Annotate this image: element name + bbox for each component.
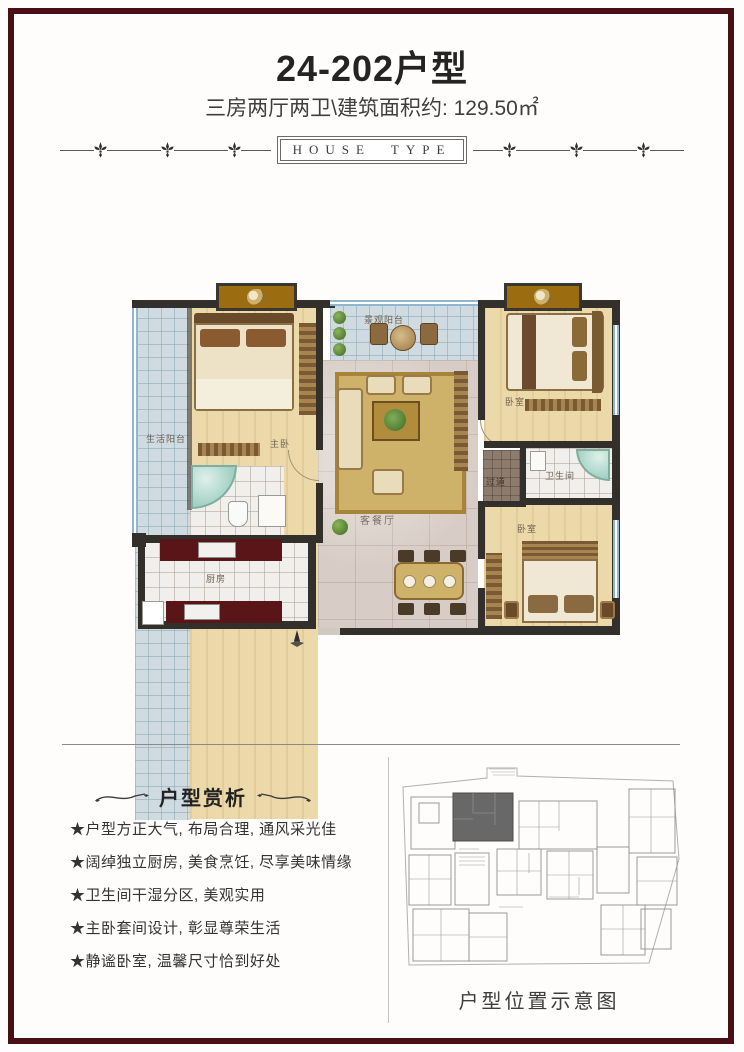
wall [524,498,614,505]
fleur-de-lis-icon [570,142,583,158]
fleur-de-lis-icon [503,142,516,158]
page-title: 24-202户型 [0,40,744,92]
table-plant-icon [384,409,406,431]
wardrobe [486,553,502,619]
wall [484,441,614,448]
wall [340,628,480,635]
north-arrow-icon [288,630,306,657]
plate [443,575,456,588]
dining-chair [450,550,466,562]
wardrobe [299,323,316,415]
bed-headboard [522,541,598,559]
highlighted-unit [453,793,513,841]
kitchen-door [142,601,164,625]
nightstand [600,601,615,619]
tv-cabinet [454,371,468,471]
dining-chair [424,550,440,562]
divider-line [60,150,94,151]
bedroom-bottom-bed [522,559,598,623]
pillow [572,351,587,381]
wall [478,300,485,420]
analysis-point: ★静谧卧室, 温馨尺寸恰到好处 [70,950,388,971]
stove [184,604,220,620]
divider-line [241,150,271,151]
plate [423,575,436,588]
fleur-de-lis-icon [161,142,174,158]
room-label-kitchen: 厨房 [206,572,226,585]
nightstand [504,601,519,619]
room-label-master: 主卧 [270,437,290,450]
fleur-de-lis-icon [637,142,650,158]
bed-bench [198,443,260,456]
divider-line [473,150,503,151]
room-label-bedroom-bottom: 卧室 [517,522,537,535]
floor-plan: 主卧 生活阳台 景观阳台 客餐厅 [132,283,620,635]
plant-icon [333,311,346,324]
flourish-right-icon [255,791,311,803]
sofa [337,388,363,470]
window [613,325,619,415]
pillow [200,329,240,347]
fleur-de-lis-icon [94,142,107,158]
window [330,300,478,306]
flyer-page: 24-202户型 三房两厅两卫\建筑面积约: 129.50㎡ HOUSE TYP… [0,0,744,1052]
analysis-points: ★户型方正大气, 布局合理, 通风采光佳 ★阔绰独立厨房, 美食烹饪, 尽享美味… [70,818,388,983]
divider-line [650,150,684,151]
analysis-point: ★主卧套间设计, 彰显尊荣生活 [70,917,388,938]
analysis-point: ★户型方正大气, 布局合理, 通风采光佳 [70,818,388,839]
house-type-banner: HOUSE TYPE [277,136,468,164]
dining-chair [398,603,414,615]
wall [316,483,323,543]
plant-icon [332,519,348,535]
analysis-title: 户型赏析 [159,782,247,811]
pillow [564,595,594,613]
bedroom-top-bed [506,313,604,391]
wall [478,501,526,507]
bed-runner [522,315,536,389]
dining-chair [424,603,440,615]
wall [316,300,323,450]
lounge-chair [372,469,404,495]
divider-line [516,150,570,151]
wall [478,626,620,635]
room-label-life-balcony: 生活阳台 [146,432,186,445]
wall [132,300,188,308]
bed-duvet [196,379,292,409]
armchair [366,375,396,395]
room-label-bathroom: 卫生间 [545,469,575,482]
window [613,520,619,598]
kitchen-sink [198,542,236,558]
bed-headboard [592,311,603,393]
plant-icon [333,343,346,356]
page-subtitle: 三房两厅两卫\建筑面积约: 129.50㎡ [0,92,744,122]
divider-line [107,150,161,151]
fleur-de-lis-icon [228,142,241,158]
toilet [228,501,248,527]
house-type-text: HOUSE TYPE [280,139,465,161]
room-label-bedroom-top: 卧室 [505,395,525,408]
window [132,308,138,536]
balcony-chair [370,323,388,345]
plate [403,575,416,588]
section-divider-line [62,744,680,745]
room-label-living-dining: 客餐厅 [360,512,396,527]
wall [295,300,335,308]
dining-chair [450,603,466,615]
wall [520,441,526,505]
entry-opening [318,628,340,635]
balcony-table [390,325,416,351]
divider-line [583,150,637,151]
site-plan-caption: 户型位置示意图 [389,985,689,1014]
dining-chair [398,550,414,562]
balcony-chair [420,323,438,345]
sink [530,451,546,471]
pillow [528,595,558,613]
flower-decor-icon [247,289,265,305]
analysis-point: ★卫生间干湿分区, 美观实用 [70,884,388,905]
flower-decor-icon [534,289,552,305]
ornament-divider: HOUSE TYPE [60,139,684,161]
analysis-header: 户型赏析 [62,782,344,811]
wall [478,501,485,559]
plant-icon [333,327,346,340]
divider-line [174,150,228,151]
bay-window-master [216,283,297,311]
pillow [572,317,587,347]
site-plan-drawing [389,757,689,983]
wall [478,588,485,628]
armchair [402,375,432,395]
site-plan: 户型位置示意图 [388,757,689,1023]
vanity [258,495,286,527]
flourish-left-icon [95,791,151,803]
analysis-point: ★阔绰独立厨房, 美食烹饪, 尽享美味情缘 [70,851,388,872]
bay-window-bedroom [504,283,582,311]
pillow [246,329,286,347]
room-label-corridor: 过道 [486,475,506,488]
dining-table [394,562,464,600]
bed-bench [525,399,601,411]
wall [308,537,316,627]
